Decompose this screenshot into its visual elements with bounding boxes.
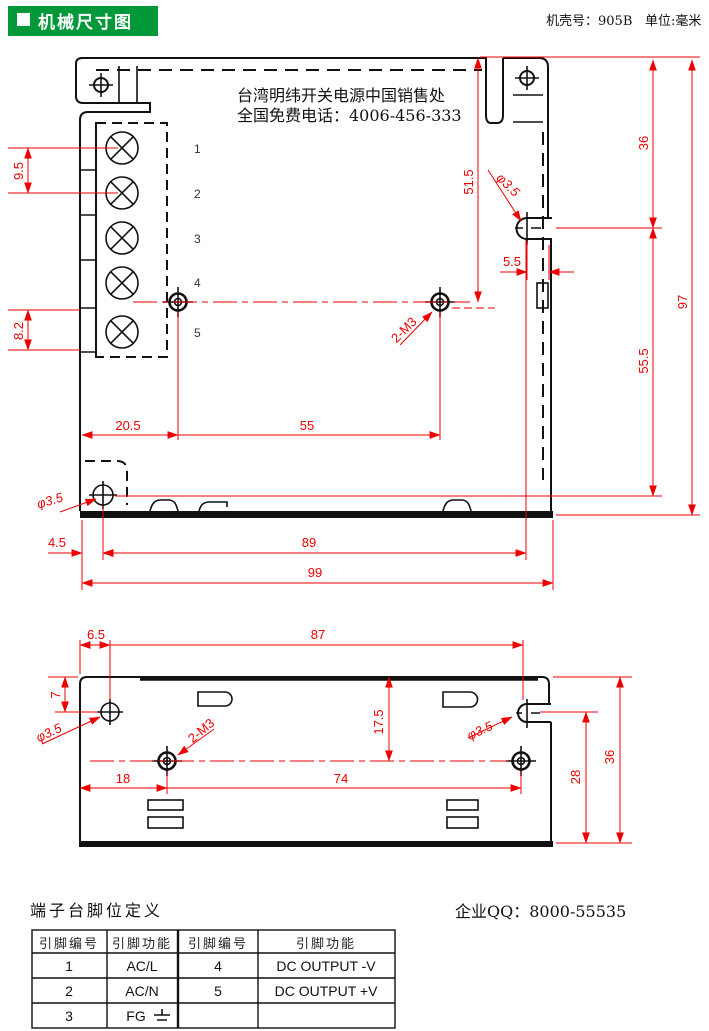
terminal-screw-icons [106,132,138,348]
corner-bracket [85,461,127,505]
dim-side-hole-to-base-hole: 55.5 [636,348,651,373]
dim-top-to-center: 17.5 [371,709,386,734]
dim-top-to-side-hole: 36 [636,136,651,150]
slot [443,692,478,707]
vent [447,800,478,810]
sales-note-line2: 全国免费电话：4006-456-333 [237,106,462,125]
dim-side-height: 36 [602,750,617,764]
pin-table-header: 引脚功能 [296,936,356,952]
vent [148,817,183,828]
mechanical-dimension-page: 机械尺寸图 机壳号：905B 单位:毫米 [0,0,709,1031]
louver [443,500,471,511]
side-view: 6.5 87 7 φ3.5 2-M3 17.5 φ3.5 18 74 [34,627,632,847]
table-row: 1 AC/L 4 DC OUTPUT -V [65,958,376,974]
bottom-flange [79,841,553,847]
dim-top-to-holes: 51.5 [461,169,476,194]
dim-m3-span: 74 [334,771,348,786]
pin-number-cell: 4 [214,958,222,974]
pin-table-header: 引脚编号 [188,936,248,952]
ear-screw-left-icon [89,66,137,103]
dim-base-hole-left: 4.5 [48,535,66,550]
louver [199,502,227,511]
dim-hole-left: 20.5 [115,418,140,433]
qq-label: 企业QQ：8000-55535 [455,902,626,921]
pin-number-cell: 2 [65,983,73,999]
pin-function-cell: AC/L [126,958,157,974]
case-number-label: 机壳号：905B [546,14,632,29]
ear-screw-right-icon [515,66,539,90]
dim-hole-dia-right: φ3.5 [465,718,496,743]
pin-table: 引脚编号 引脚功能 引脚编号 引脚功能 1 AC/L 4 DC OUTPUT -… [32,930,395,1028]
top-view: 1 2 3 4 5 台湾明纬开关电源中国销售处 全国免费电话：4006-456-… [8,57,700,590]
vent [447,817,478,828]
dim-side-hole-edge: 5.5 [503,254,521,269]
table-row: 3 FG [65,1008,170,1024]
dimension-drawing: 机械尺寸图 机壳号：905B 单位:毫米 [0,0,709,1031]
pin-function-cell: DC OUTPUT +V [275,983,378,999]
dim-bottom-pitch: 8.2 [11,322,26,340]
sales-note-line1: 台湾明纬开关电源中国销售处 [237,86,445,105]
pin-table-header: 引脚编号 [39,936,99,952]
pin-function-cell: FG [126,1008,145,1024]
terminal-number: 2 [194,187,201,201]
pin-number-cell: 3 [65,1008,73,1024]
side-view-dimensions: 6.5 87 7 φ3.5 2-M3 17.5 φ3.5 18 74 [34,627,632,843]
dim-base-hole-dia: φ3.5 [35,489,65,511]
banner-square-icon [17,13,30,26]
side-view-outline [79,677,553,847]
vent [148,800,183,810]
terminal-number: 3 [194,232,201,246]
dim-hole-span: 55 [300,418,314,433]
pin-table-title: 端子台脚位定义 [30,901,163,920]
dim-height: 97 [675,295,690,309]
section-title: 机械尺寸图 [38,12,133,33]
terminal-number: 5 [194,326,201,340]
bottom-flange [80,511,553,518]
louver [150,500,178,511]
side-hole-left-icon [97,699,123,725]
dim-terminal-pitch: 9.5 [11,162,26,180]
pin-table-header: 引脚功能 [112,936,172,952]
terminal-number: 1 [194,142,201,156]
page-header: 机械尺寸图 机壳号：905B 单位:毫米 [8,6,701,36]
slot [198,692,232,706]
pin-table-section: 端子台脚位定义 企业QQ：8000-55535 引脚编号 引脚功能 引脚编号 引… [30,901,626,1028]
dim-base-span: 89 [302,535,316,550]
pin-function-cell: AC/N [125,983,158,999]
base-mounting-hole-icon [89,481,117,509]
dim-hole-to-base: 28 [568,770,583,784]
dim-side-hole-dia: φ3.5 [493,170,523,200]
terminal-block: 1 2 3 4 5 [80,123,201,357]
unit-label: 单位:毫米 [645,13,701,29]
dim-screws-label: 2-M3 [185,715,217,746]
pin-number-cell: 5 [214,983,222,999]
pin-function-cell: DC OUTPUT -V [276,958,376,974]
earth-ground-icon [154,1009,170,1020]
dim-left-to-m3: 18 [116,771,130,786]
top-view-outline [76,58,553,518]
table-row: 2 AC/N 5 DC OUTPUT +V [65,983,378,999]
dim-top-to-hole: 7 [48,691,63,698]
pin-number-cell: 1 [65,958,73,974]
terminal-number: 4 [194,276,201,290]
dim-hole-span-top: 87 [311,627,325,642]
m3-screw-right-icon [506,746,536,776]
dim-edge-to-hole: 6.5 [87,627,105,642]
dim-width: 99 [308,565,322,580]
